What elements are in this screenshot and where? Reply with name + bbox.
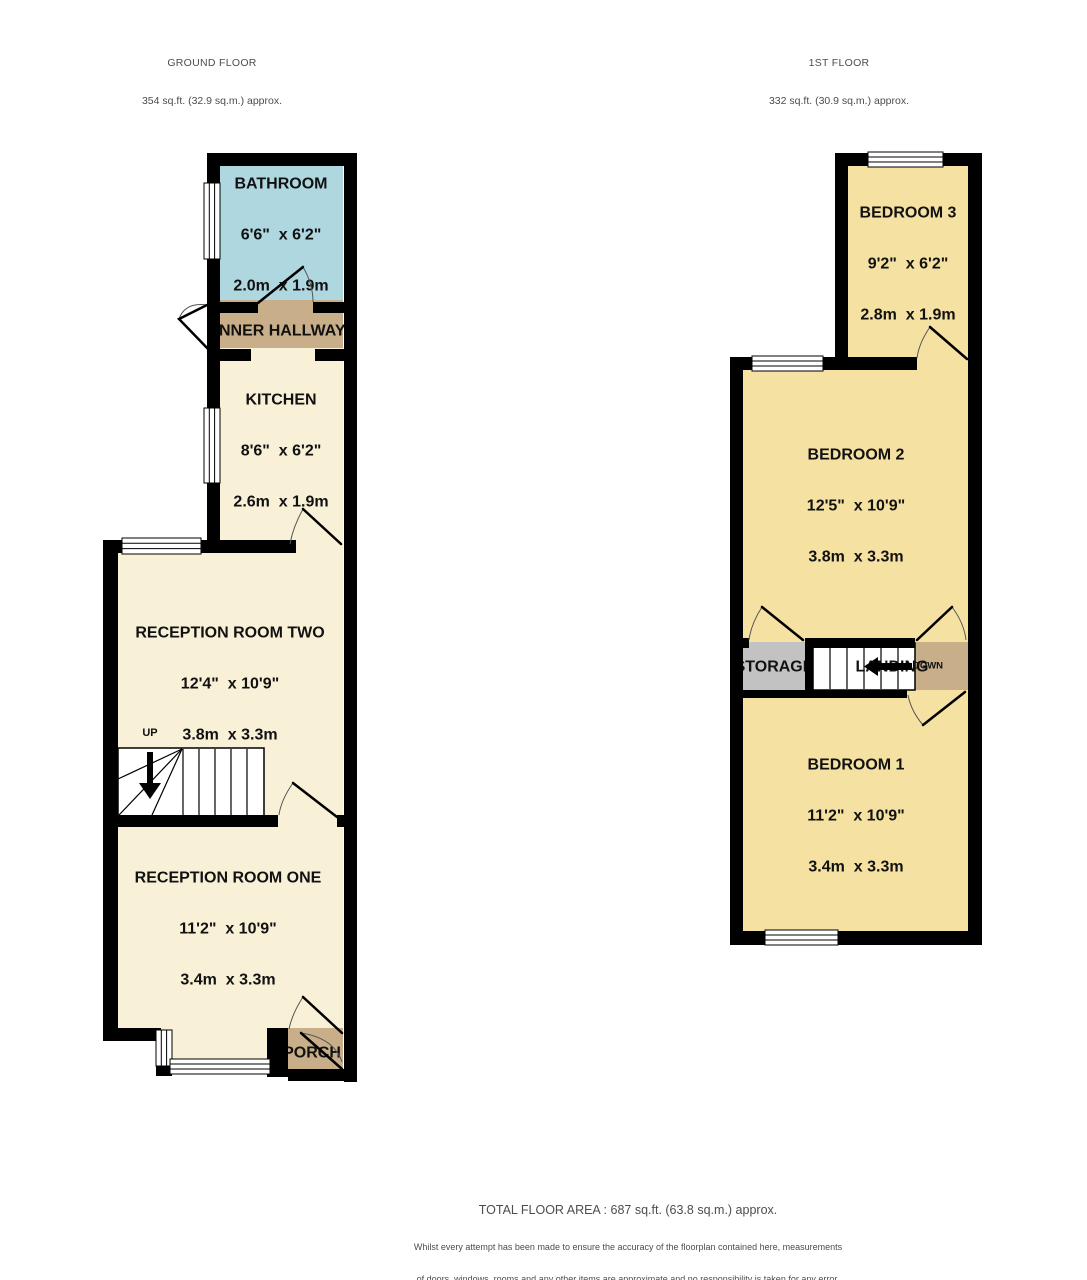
down-label: DOWN: [913, 661, 943, 672]
floorplan-canvas: GROUND FLOOR 354 sq.ft. (32.9 sq.m.) app…: [0, 0, 1087, 1280]
top-labels-layer: DOWN: [0, 0, 1087, 1280]
